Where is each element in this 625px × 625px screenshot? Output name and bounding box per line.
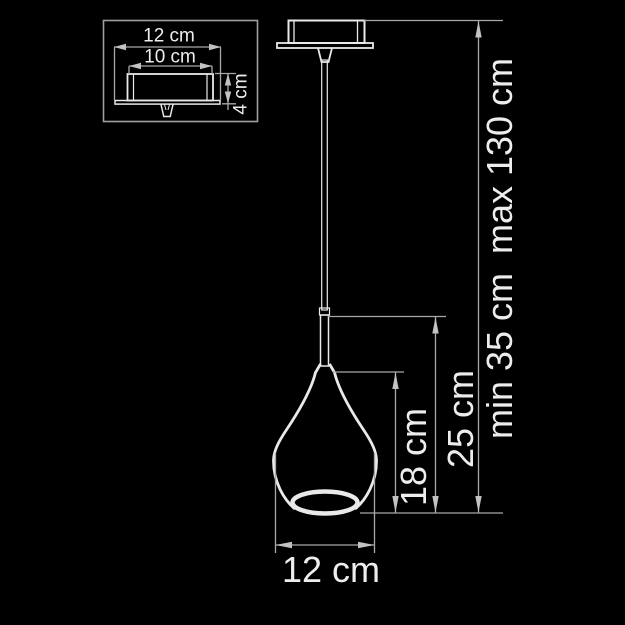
canopy-inner-edges bbox=[294, 21, 358, 43]
shade-right-profile bbox=[330, 364, 377, 509]
inset-cord-grip bbox=[161, 105, 173, 117]
inset-cord-grip-inner bbox=[165, 105, 170, 111]
suspension bbox=[320, 60, 330, 366]
cord bbox=[322, 60, 328, 310]
inset-outer-width-label: 12 cm bbox=[143, 27, 195, 46]
inset-canopy-body bbox=[128, 74, 214, 101]
canopy-plate bbox=[277, 43, 373, 48]
shade-opening-rim bbox=[293, 492, 358, 514]
shade bbox=[274, 364, 377, 514]
pendant-lamp-dimension-diagram: 12 cm 10 cm 4 cm 18 cm 25 cm min 35 cm m… bbox=[0, 0, 625, 625]
diagram-geometry bbox=[0, 0, 625, 625]
cord-joint bbox=[320, 308, 330, 315]
shade-height-label: 18 cm bbox=[396, 408, 432, 506]
inset-canopy-inner-edges bbox=[134, 75, 208, 101]
main-canopy bbox=[277, 21, 373, 63]
canopy-body bbox=[289, 21, 365, 44]
stem bbox=[321, 315, 329, 366]
shade-with-stem-height-label: 25 cm bbox=[443, 370, 479, 468]
inset-height-label: 4 cm bbox=[232, 73, 251, 114]
inset-canopy-plate bbox=[115, 101, 220, 105]
shade-left-profile bbox=[274, 364, 321, 509]
shade-diameter-label: 12 cm bbox=[282, 552, 380, 588]
main-dimensions bbox=[276, 21, 504, 554]
suspension-min-label: min 35 cm bbox=[482, 273, 518, 439]
suspension-max-label: max 130 cm bbox=[482, 58, 518, 254]
inset-inner-width-label: 10 cm bbox=[144, 47, 196, 66]
